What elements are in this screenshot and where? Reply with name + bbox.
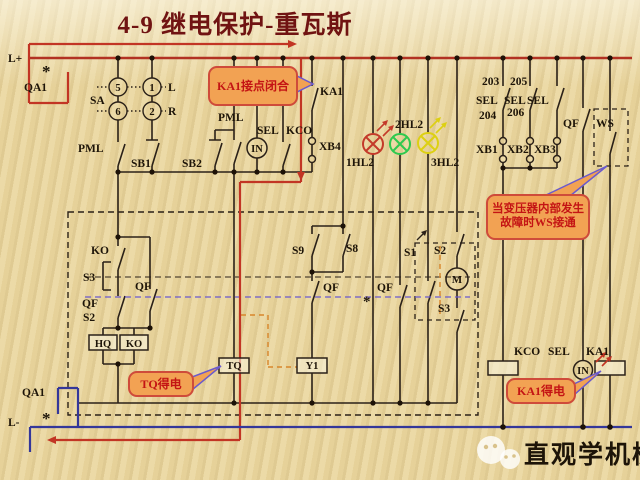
label-sel-bottom: SEL [548, 346, 570, 358]
label-l-minus: L- [8, 417, 20, 429]
label-sa-right: R [168, 106, 177, 118]
label-qf-right: QF [563, 118, 579, 130]
label-s2-left: S2 [83, 312, 95, 324]
label-qa1-top: QA1 [24, 82, 47, 94]
qa1-top-break-mark: * [42, 62, 51, 81]
circuit-diagram: L+ QA1 * SA 5 1 6 2 L R PML SB1 SB2 PML … [0, 0, 640, 480]
label-203: 203 [482, 76, 500, 88]
label-l-plus: L+ [8, 53, 22, 65]
lamp-1hl2-icon [363, 120, 394, 154]
qa1-bottom-break-mark: * [42, 409, 51, 428]
label-sel-b: SEL [504, 95, 526, 107]
sa-terminal-1: 1 [149, 83, 154, 94]
label-s3-motor: S3 [438, 303, 450, 315]
label-qf-a: QF [82, 298, 98, 310]
motor-text: M [452, 274, 463, 286]
wechat-icon [477, 436, 520, 469]
callout-pointer-ws [544, 166, 607, 196]
label-s9: S9 [292, 245, 304, 257]
sa-dotted-leads [97, 87, 166, 111]
callout-ka1-energized: KA1得电 [506, 378, 576, 404]
flow-arrow-left-icon [47, 436, 56, 444]
label-sb2: SB2 [182, 158, 202, 170]
sa-terminal-6: 6 [115, 107, 120, 118]
label-206: 206 [507, 107, 525, 119]
label-sel-c: SEL [527, 95, 549, 107]
label-sa-left: L [168, 82, 176, 94]
flow-arrow-right-icon [288, 40, 297, 48]
y1-coil-text: Y1 [306, 361, 319, 372]
label-lamp-2hl2: 2HL2 [395, 119, 423, 131]
label-s2-motor: S2 [434, 245, 446, 257]
label-lamp-1hl2: 1HL2 [346, 157, 374, 169]
callout-pointer-ka1-contact [297, 76, 313, 92]
in-relay-top-text: IN [251, 144, 263, 155]
qf-energized-mark: * [363, 294, 371, 310]
label-sb1: SB1 [131, 158, 151, 170]
label-pml-left: PML [78, 143, 104, 155]
label-qa1-bottom: QA1 [22, 387, 45, 399]
label-qf-b: QF [135, 281, 151, 293]
watermark-text: 直观学机械 [524, 440, 640, 469]
label-s8: S8 [346, 243, 358, 255]
label-xb3: XB3 [534, 144, 556, 156]
callout-pointer-tq [192, 366, 221, 390]
flow-arrow-down-icon [297, 172, 305, 181]
label-sel-a: SEL [476, 95, 498, 107]
callout-tq-energized: TQ得电 [128, 371, 194, 397]
watermark: 直观学机械 [477, 436, 640, 469]
label-204: 204 [479, 110, 497, 122]
label-lamp-3hl2: 3HL2 [431, 157, 459, 169]
ko-coil-text: KO [126, 339, 142, 350]
callout-ka1-contact-closes: KA1接点闭合 [208, 66, 298, 106]
label-sa: SA [90, 95, 105, 107]
callout-ws-fault-note: 当变压器内部发生故障时WS接通 [486, 194, 590, 240]
label-ka1-bottom: KA1 [586, 346, 609, 358]
label-pml-mid: PML [218, 112, 244, 124]
in-relay-bottom-text: IN [577, 366, 589, 377]
label-sel-top: SEL [257, 125, 279, 137]
label-205: 205 [510, 76, 528, 88]
label-s3-left: S3 [83, 272, 95, 284]
label-ws: WS [596, 118, 614, 130]
label-s1: S1 [404, 247, 416, 259]
sa-terminal-2: 2 [149, 107, 154, 118]
label-kco-top: KCO [286, 125, 312, 137]
label-xb4: XB4 [319, 141, 341, 153]
slide: 4-9 继电保护-重瓦斯 [0, 0, 640, 480]
lamp-2hl2-icon [390, 134, 410, 154]
label-ko-contact: KO [91, 245, 109, 257]
label-xb1: XB1 [476, 144, 498, 156]
hq-coil-text: HQ [95, 339, 111, 350]
kco-coil-box [488, 361, 518, 375]
tq-coil-text: TQ [226, 361, 241, 372]
label-ka1-contact: KA1 [320, 86, 343, 98]
sa-terminal-5: 5 [115, 83, 120, 94]
mech-link-dash-orange [241, 246, 440, 367]
label-qf-c: QF [323, 282, 339, 294]
label-kco-bottom: KCO [514, 346, 540, 358]
label-xb2: XB2 [507, 144, 529, 156]
label-qf-d: QF [377, 282, 393, 294]
